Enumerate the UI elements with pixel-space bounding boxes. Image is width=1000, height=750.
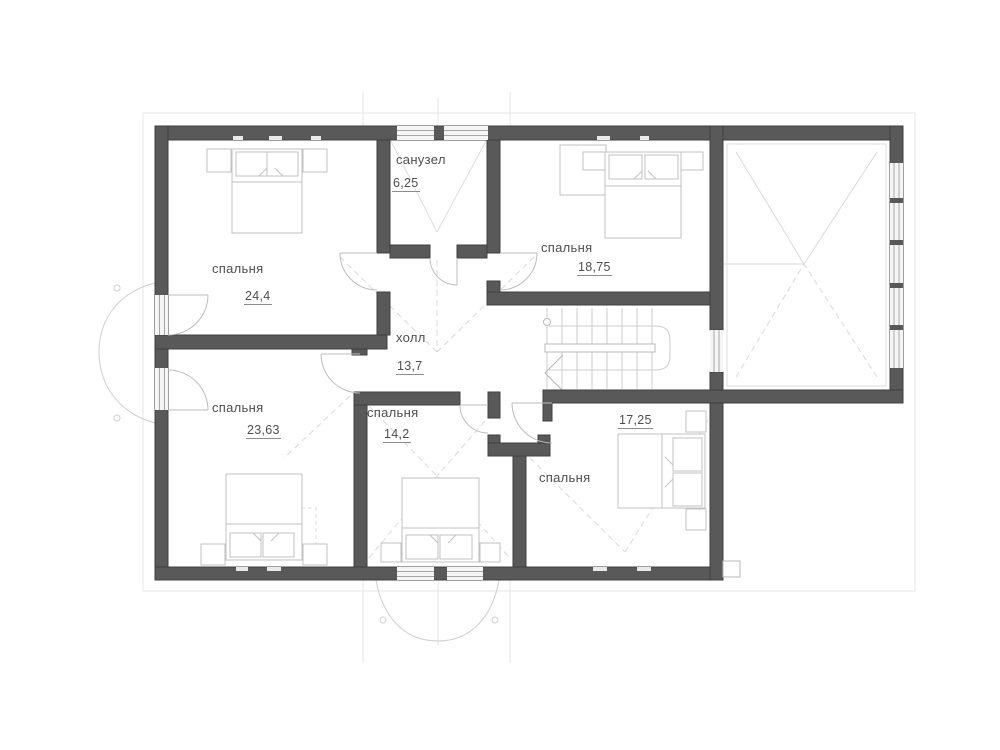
door-bedroom-bottom-left: [321, 354, 360, 393]
room-label-bedroom-bottom-left: спальня: [212, 400, 263, 415]
bed-bottom-left: [201, 474, 327, 565]
bed-bottom-middle: [381, 478, 500, 562]
room-area-hall: 13,7: [396, 359, 424, 375]
room-label-bedroom-bottom-mid: спальня: [367, 405, 418, 420]
door-bedroom-top-left: [340, 253, 377, 290]
room-area-bedroom-bottom-left: 23,63: [246, 423, 281, 439]
bed-top-left: [207, 149, 327, 233]
door-bedroom-bottom-mid: [460, 405, 488, 433]
stair-direction-arrow: [545, 355, 563, 391]
bed-top-right: [560, 145, 703, 238]
door-balcony-upper: [168, 295, 208, 335]
room-label-bedroom-bottom-right: спальня: [539, 470, 590, 485]
chimney: [723, 561, 740, 577]
room-area-bedroom-top-right: 18,75: [577, 260, 612, 276]
furniture: [201, 145, 706, 565]
room-label-bathroom: санузел: [396, 152, 446, 167]
room-area-bedroom-bottom-mid: 14,2: [383, 427, 411, 443]
door-bathroom: [430, 258, 457, 285]
floor-plan-drawing: [0, 0, 1000, 750]
door-balcony-lower: [168, 370, 208, 410]
room-label-bedroom-top-right: спальня: [541, 240, 592, 255]
terrace-deck-lines: [723, 144, 886, 386]
room-label-bedroom-top-left: спальня: [212, 261, 263, 276]
room-area-bedroom-top-left: 24,4: [244, 289, 272, 305]
room-label-hall: холл: [396, 330, 426, 345]
balcony-left: [99, 283, 155, 423]
floor-plan-canvas: санузел 6,25 спальня 24,4 спальня 18,75 …: [0, 0, 1000, 750]
staircase: [544, 308, 671, 391]
room-area-bathroom: 6,25: [392, 176, 420, 192]
room-area-bedroom-bottom-right: 17,25: [618, 413, 653, 429]
